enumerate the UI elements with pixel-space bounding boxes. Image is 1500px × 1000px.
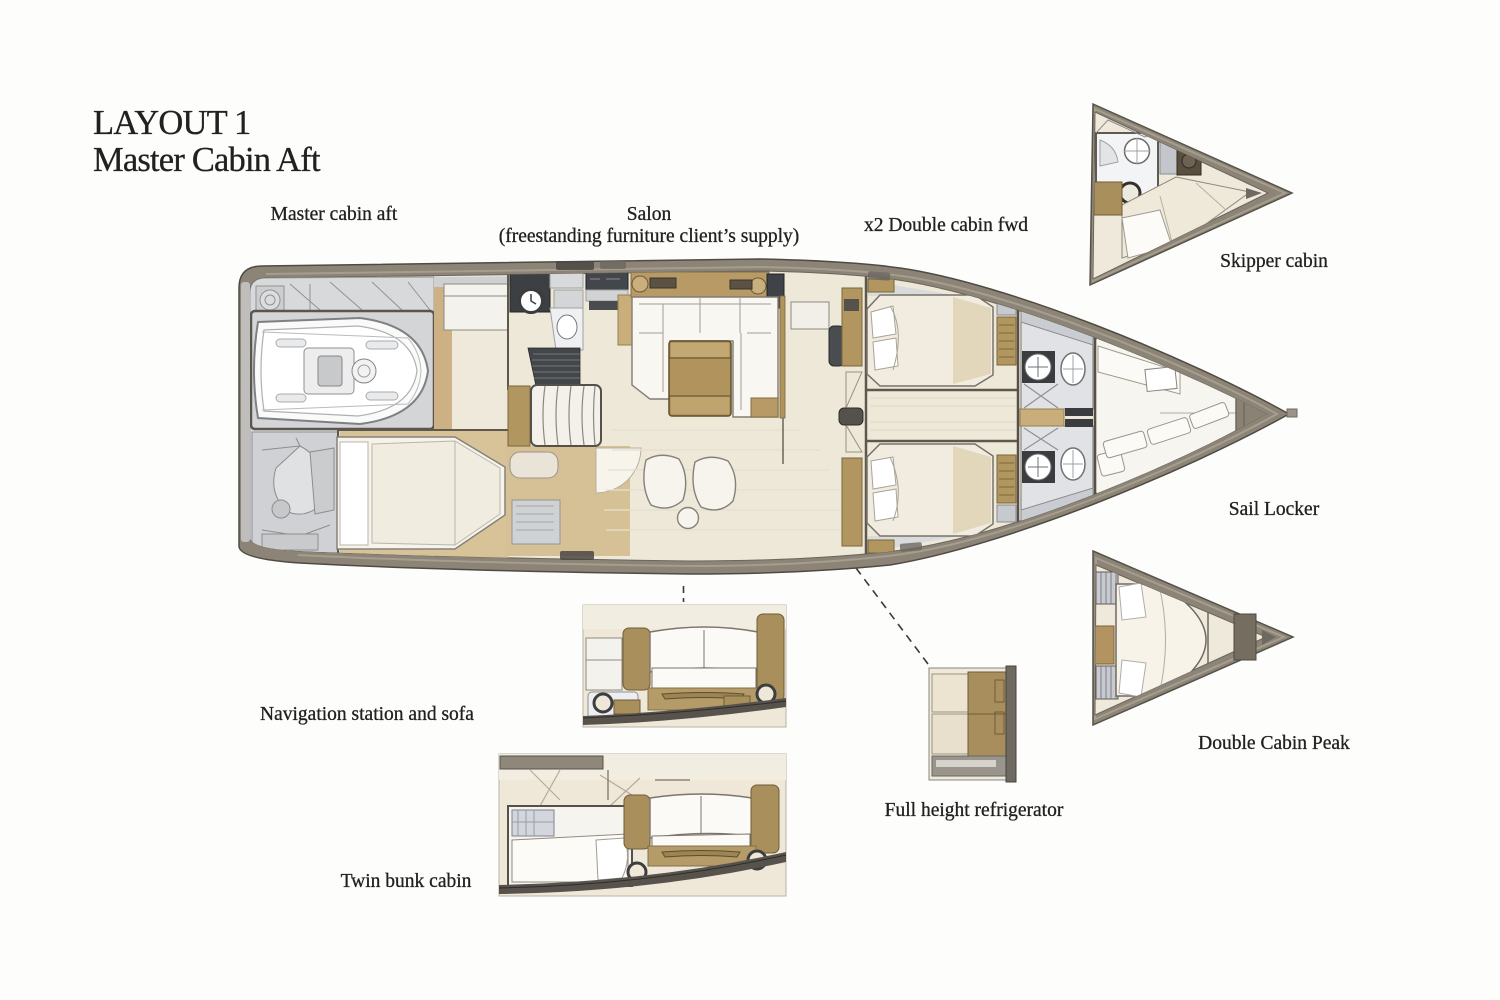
svg-text:LAYOUT 1: LAYOUT 1: [93, 104, 251, 142]
svg-text:Double Cabin Peak: Double Cabin Peak: [1198, 733, 1350, 754]
svg-text:Skipper cabin: Skipper cabin: [1220, 251, 1328, 272]
svg-text:(freestanding furniture client: (freestanding furniture client’s supply): [499, 226, 800, 247]
svg-text:Navigation station and sofa: Navigation station and sofa: [260, 704, 474, 725]
svg-text:Twin bunk cabin: Twin bunk cabin: [341, 871, 472, 892]
svg-text:Master cabin aft: Master cabin aft: [271, 204, 398, 225]
svg-text:x2 Double cabin fwd: x2 Double cabin fwd: [864, 215, 1028, 236]
svg-text:Salon: Salon: [627, 204, 672, 225]
svg-text:Master Cabin Aft: Master Cabin Aft: [93, 141, 321, 179]
svg-text:Full height refrigerator: Full height refrigerator: [885, 800, 1064, 821]
svg-text:Sail Locker: Sail Locker: [1229, 499, 1320, 520]
